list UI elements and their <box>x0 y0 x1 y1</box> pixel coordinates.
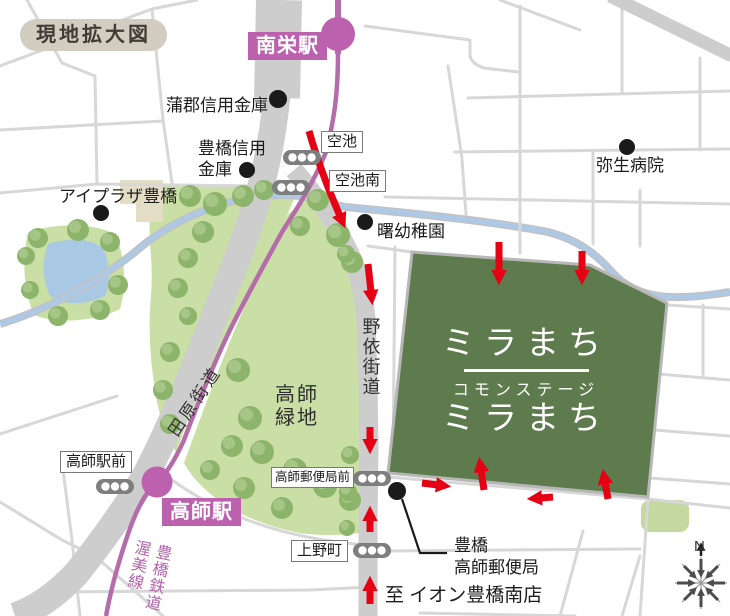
tree-icon <box>48 306 68 326</box>
tree-icon <box>179 185 201 207</box>
tree-icon <box>250 440 274 464</box>
tree-icon <box>290 216 310 236</box>
poi-dot <box>357 214 373 230</box>
enlarged-area-map: 現地拡大図 南栄駅 高師駅 空池 空池南 高師駅前 高師郵便局前 上野町 蒲郡信… <box>0 0 730 616</box>
bus-stop-icon <box>353 471 391 486</box>
takashi-station-marker <box>142 467 173 498</box>
poi-label-toyohashi-takashi-post-office: 豊橋 高師郵便局 <box>454 535 539 579</box>
station-label-minamisakae: 南栄駅 <box>248 32 327 60</box>
poi-dot <box>388 482 406 500</box>
tree-icon <box>203 192 227 216</box>
tree-icon <box>339 520 355 536</box>
red-direction-arrow <box>540 497 553 498</box>
bus-stop-label-uenocho: 上野町 <box>291 540 348 562</box>
tree-icon <box>90 300 110 320</box>
tree-icon <box>17 247 35 265</box>
site-name-bottom: ミラまち <box>426 399 626 440</box>
site-name-divider <box>464 369 589 372</box>
tree-icon <box>254 180 274 200</box>
park-label-takashi-ryokuchi: 高師 緑地 <box>269 384 325 430</box>
compass-north-label: N <box>694 538 705 557</box>
tree-icon <box>226 358 250 382</box>
tree-icon <box>21 281 39 299</box>
tree-icon <box>160 342 180 362</box>
tree-icon <box>200 460 220 480</box>
poi-dot <box>93 205 109 221</box>
tree-icon <box>238 406 262 430</box>
compass-rose <box>675 550 727 609</box>
map-canvas <box>0 0 730 616</box>
tree-icon <box>271 497 293 519</box>
tree-icon <box>341 446 359 464</box>
red-direction-arrow <box>368 264 371 292</box>
red-direction-arrow <box>481 470 484 490</box>
tree-icon <box>233 477 255 499</box>
bus-stop-label-karaike: 空池 <box>321 131 363 153</box>
direction-note-to-aeon: 至 イオン豊橋南店 <box>385 584 542 608</box>
post-office-pointer <box>402 499 447 553</box>
tree-icon <box>192 221 214 243</box>
poi-label-yayoi-hospital: 弥生病院 <box>596 155 664 176</box>
site-brand: コモンステージ <box>426 381 626 401</box>
bus-stop-icon <box>283 150 321 165</box>
station-label-takashi: 高師駅 <box>162 498 241 526</box>
tree-icon <box>179 307 197 325</box>
tree-icon <box>100 232 120 252</box>
bus-stop-icon <box>96 479 134 494</box>
tree-icon <box>67 219 89 241</box>
bus-stop-label-takashi-ekimae: 高師駅前 <box>60 451 132 473</box>
tree-icon <box>153 380 173 400</box>
tree-icon <box>307 189 329 211</box>
poi-label-gamagori-shinkin-bank: 蒲郡信用金庫 <box>166 95 268 116</box>
bus-stop-icon <box>272 180 310 195</box>
tree-icon <box>232 185 254 207</box>
site-area <box>388 252 667 497</box>
tree-icon <box>108 275 128 295</box>
tree-icon <box>178 248 198 268</box>
bus-stop-icon <box>353 543 391 558</box>
red-direction-arrow <box>605 482 608 499</box>
tree-icon <box>221 435 243 457</box>
tree-icon <box>326 223 350 247</box>
poi-label-akebono-kindergarten: 曙幼稚園 <box>377 221 445 242</box>
bus-stop-label-takashi-post-office-mae: 高師郵便局前 <box>271 467 354 488</box>
poi-dot <box>269 90 287 108</box>
site-name-top: ミラまち <box>426 324 626 365</box>
poi-label-ai-plaza-toyohashi: アイプラザ豊橋 <box>59 186 177 207</box>
poi-dot <box>619 139 635 155</box>
road-label-noyori-kaido: 野依街道 <box>359 317 382 397</box>
tree-icon <box>28 228 48 248</box>
bus-stop-label-karaike-minami: 空池南 <box>329 170 386 192</box>
red-direction-arrow <box>422 483 438 485</box>
tree-icon <box>168 278 188 298</box>
poi-label-toyohashi-shinkin-bank: 豊橋信用 金庫 <box>198 138 266 181</box>
map-title: 現地拡大図 <box>20 19 167 51</box>
road-highway-band <box>610 0 730 56</box>
tree-icon <box>337 245 355 263</box>
